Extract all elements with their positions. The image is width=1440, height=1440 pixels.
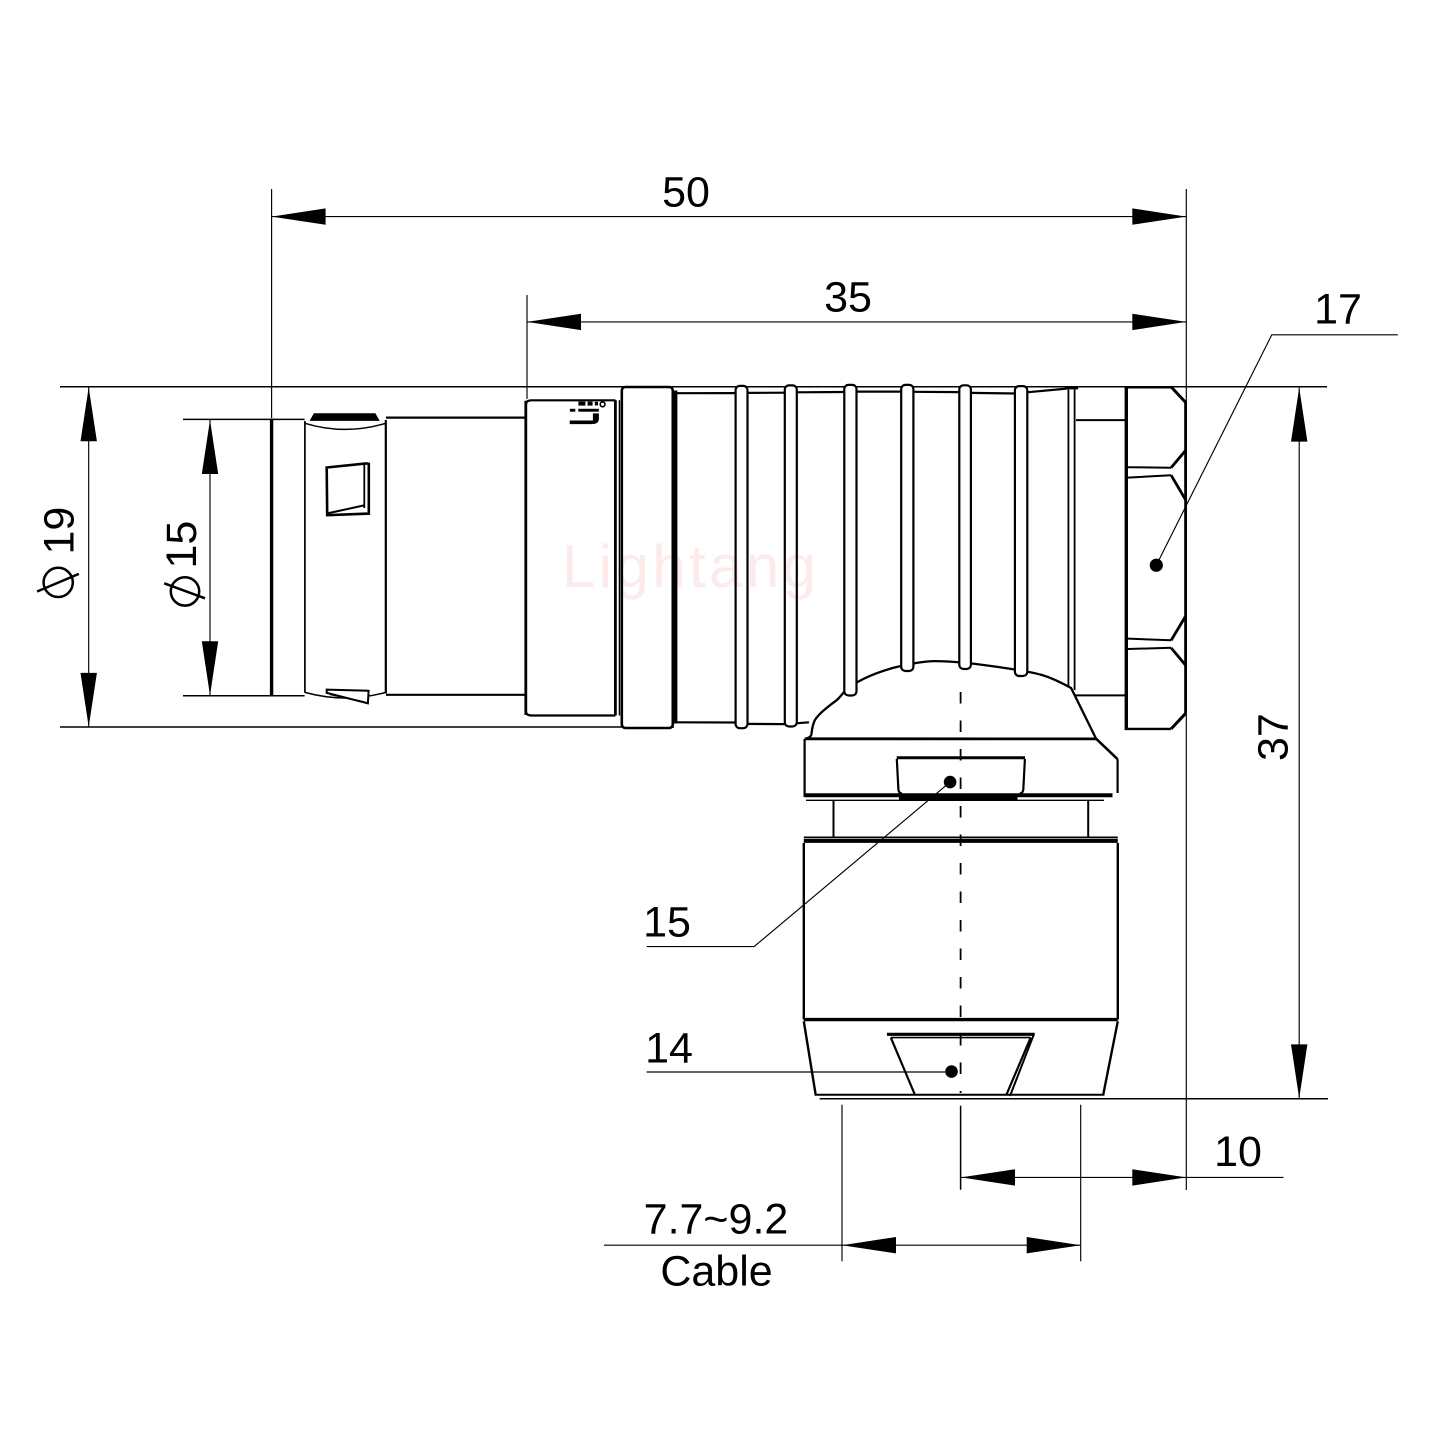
svg-text:37: 37 <box>1250 713 1298 761</box>
svg-text:15: 15 <box>643 899 691 947</box>
svg-text:35: 35 <box>824 274 872 322</box>
svg-text:14: 14 <box>645 1025 693 1073</box>
svg-text:17: 17 <box>1314 286 1362 334</box>
svg-text:7.7~9.2: 7.7~9.2 <box>644 1196 789 1244</box>
svg-text:10: 10 <box>1214 1128 1262 1176</box>
svg-text:15: 15 <box>158 521 206 569</box>
svg-text:Cable: Cable <box>660 1248 772 1296</box>
svg-text:50: 50 <box>662 169 710 217</box>
svg-text:Lightang: Lightang <box>562 533 819 600</box>
svg-text:19: 19 <box>36 507 84 555</box>
